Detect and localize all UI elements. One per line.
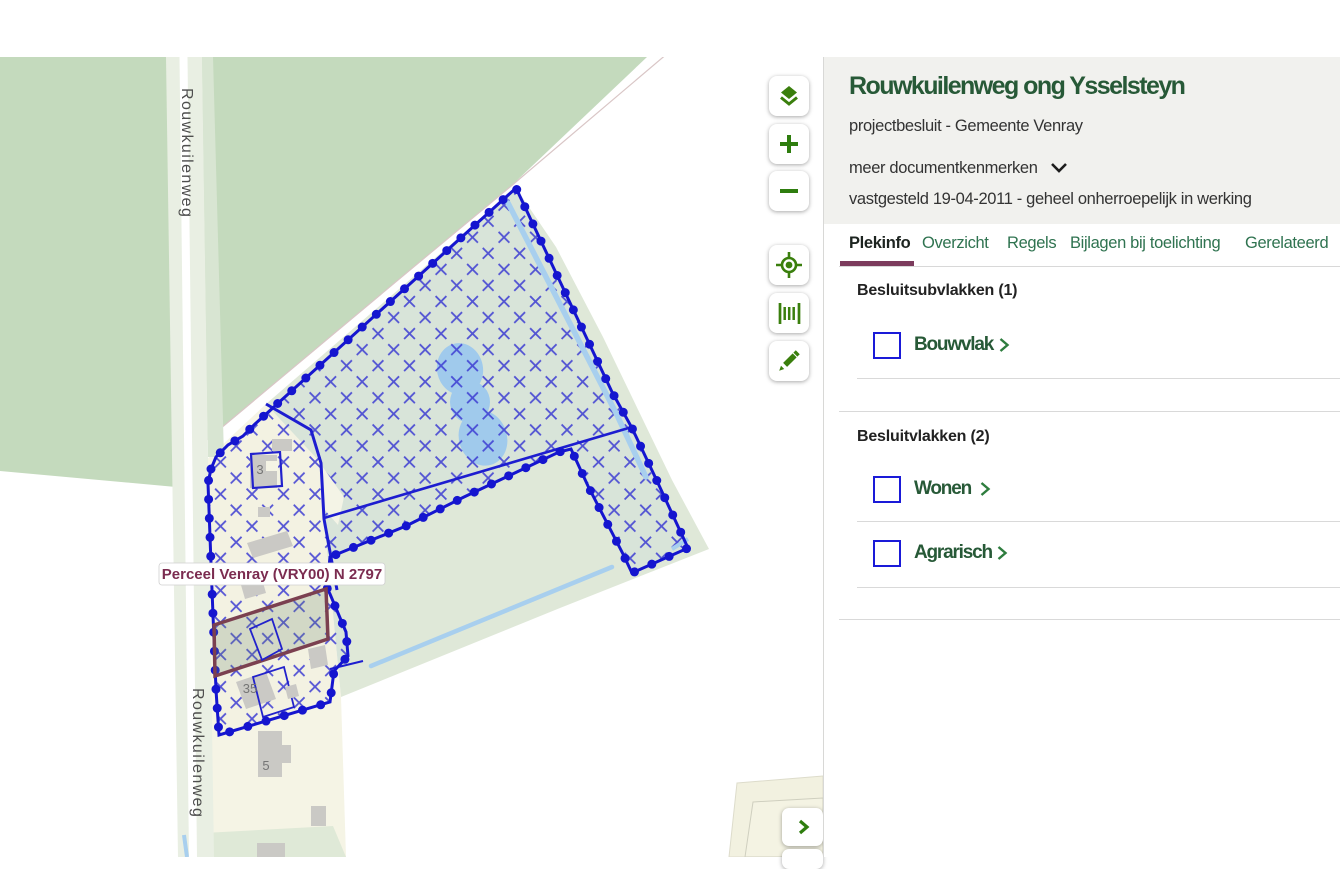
svg-text:3: 3	[256, 462, 263, 477]
svg-text:Perceel Venray (VRY00) N 2797: Perceel Venray (VRY00) N 2797	[162, 566, 382, 583]
svg-text:Rouwkuilenweg: Rouwkuilenweg	[189, 688, 206, 818]
svg-text:5: 5	[262, 758, 269, 773]
svg-text:35: 35	[243, 681, 257, 696]
svg-text:Rouwkuilenweg: Rouwkuilenweg	[178, 88, 195, 218]
